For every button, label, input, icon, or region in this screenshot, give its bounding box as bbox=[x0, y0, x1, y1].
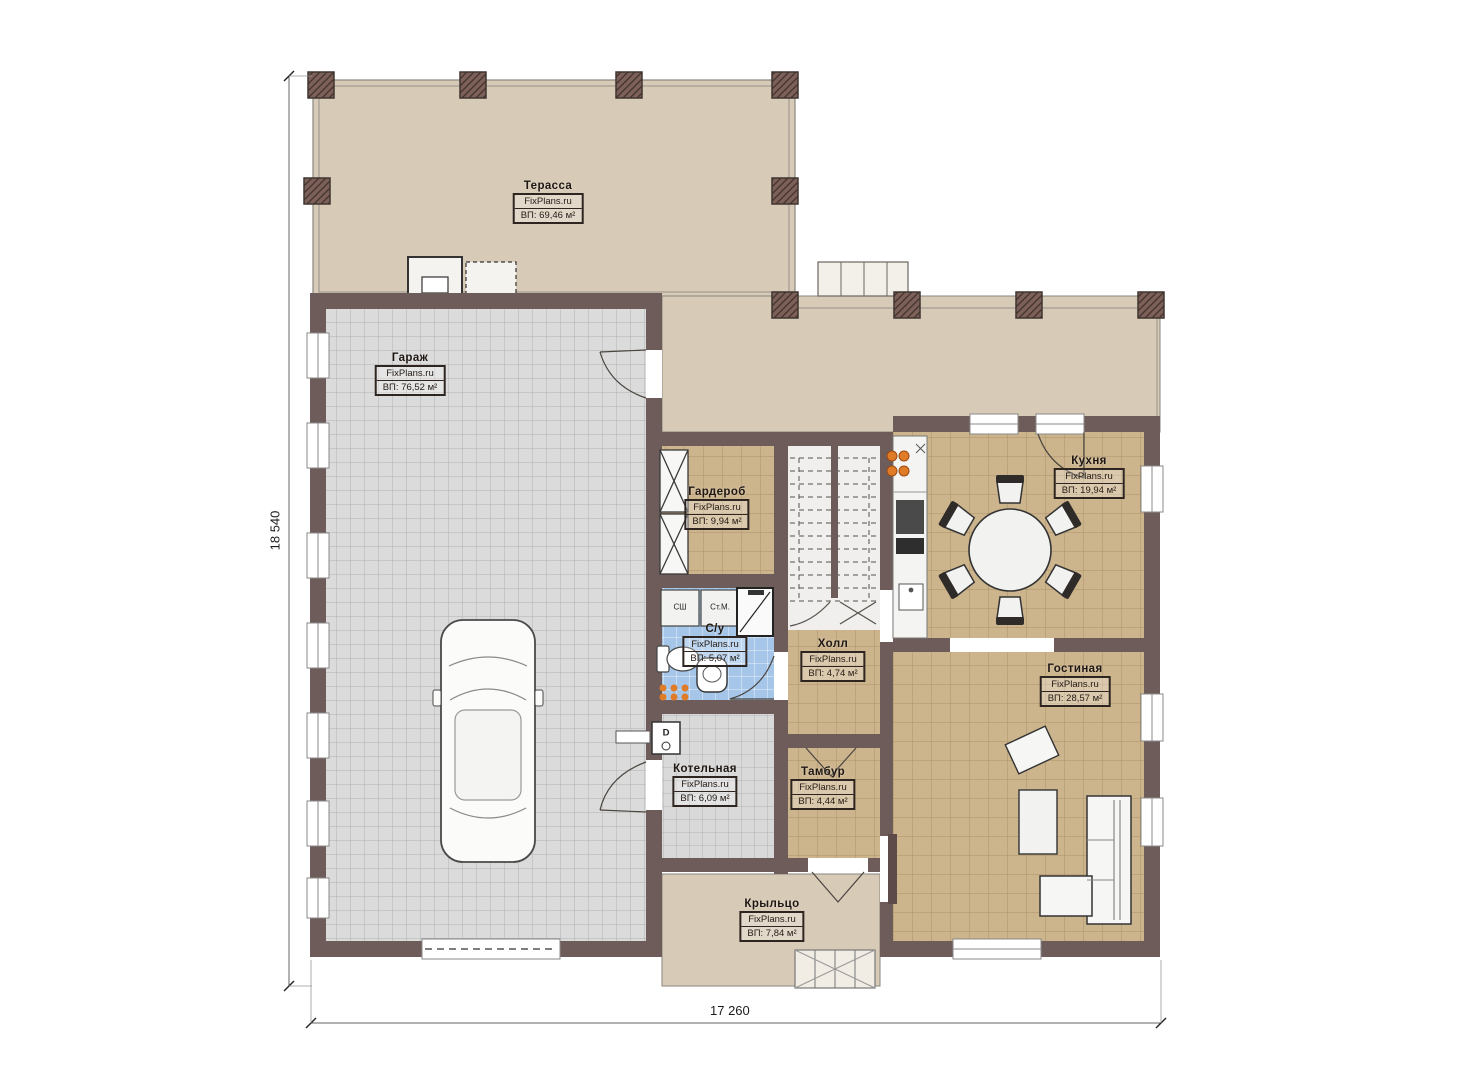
brand-text: FixPlans.ru bbox=[741, 913, 802, 927]
brand-text: FixPlans.ru bbox=[674, 778, 735, 792]
room-label-porch: Крыльцо FixPlans.ruВП: 7,84 м² bbox=[739, 898, 804, 942]
brand-text: FixPlans.ru bbox=[792, 781, 853, 795]
room-name: Гостиная bbox=[1040, 663, 1111, 675]
dryer-label: СШ bbox=[673, 603, 686, 612]
floor-plan-page: Терасса FixPlans.ruВП: 69,46 м² Гараж Fi… bbox=[0, 0, 1473, 1080]
room-area: ВП: 19,94 м² bbox=[1056, 484, 1123, 497]
room-name: Крыльцо bbox=[739, 898, 804, 910]
dimension-bottom: 17 260 bbox=[710, 1003, 750, 1018]
room-label-terrace: Терасса FixPlans.ruВП: 69,46 м² bbox=[513, 180, 584, 224]
room-name: Холл bbox=[800, 638, 865, 650]
room-name: Кухня bbox=[1054, 455, 1125, 467]
room-area: ВП: 6,09 м² bbox=[674, 792, 735, 805]
room-name: Гардероб bbox=[684, 486, 749, 498]
room-area: ВП: 76,52 м² bbox=[377, 381, 444, 394]
car bbox=[433, 620, 543, 862]
room-area: ВП: 9,94 м² bbox=[686, 515, 747, 528]
dimension-left: 18 540 bbox=[267, 511, 282, 551]
room-label-kitchen: Кухня FixPlans.ruВП: 19,94 м² bbox=[1054, 455, 1125, 499]
room-label-living: Гостиная FixPlans.ruВП: 28,57 м² bbox=[1040, 663, 1111, 707]
room-area: ВП: 69,46 м² bbox=[515, 209, 582, 222]
brand-text: FixPlans.ru bbox=[684, 638, 745, 652]
coffee-table bbox=[1019, 790, 1057, 854]
room-area: ВП: 4,74 м² bbox=[802, 667, 863, 680]
brand-text: FixPlans.ru bbox=[377, 367, 444, 381]
kitchen-counter bbox=[893, 436, 927, 638]
room-area: ВП: 4,44 м² bbox=[792, 795, 853, 808]
room-name: С/у bbox=[682, 623, 747, 635]
brand-text: FixPlans.ru bbox=[1042, 678, 1109, 692]
room-name: Котельная bbox=[672, 763, 737, 775]
boiler-unit-label: D bbox=[663, 728, 670, 739]
stair-stringer bbox=[831, 446, 838, 598]
porch-steps bbox=[795, 950, 875, 988]
terrace-steps bbox=[818, 262, 908, 296]
room-name: Терасса bbox=[513, 180, 584, 192]
room-label-bathroom: С/у FixPlans.ruВП: 5,07 м² bbox=[682, 623, 747, 667]
room-label-garage: Гараж FixPlans.ruВП: 76,52 м² bbox=[375, 352, 446, 396]
room-label-wardrobe: Гардероб FixPlans.ruВП: 9,94 м² bbox=[684, 486, 749, 530]
room-name: Гараж bbox=[375, 352, 446, 364]
floor-plan-drawing bbox=[0, 0, 1473, 1080]
room-area: ВП: 7,84 м² bbox=[741, 927, 802, 940]
room-area: ВП: 28,57 м² bbox=[1042, 692, 1109, 705]
room-label-hall: Холл FixPlans.ruВП: 4,74 м² bbox=[800, 638, 865, 682]
terrace-fireplace bbox=[408, 257, 516, 295]
room-label-vestibule: Тамбур FixPlans.ruВП: 4,44 м² bbox=[790, 766, 855, 810]
brand-text: FixPlans.ru bbox=[1056, 470, 1123, 484]
room-label-boiler: Котельная FixPlans.ruВП: 6,09 м² bbox=[672, 763, 737, 807]
room-area: ВП: 5,07 м² bbox=[684, 652, 745, 665]
room-name: Тамбур bbox=[790, 766, 855, 778]
brand-text: FixPlans.ru bbox=[686, 501, 747, 515]
pocket-door bbox=[888, 834, 897, 904]
washer-label: Ст.М. bbox=[710, 603, 730, 612]
brand-text: FixPlans.ru bbox=[515, 195, 582, 209]
brand-text: FixPlans.ru bbox=[802, 653, 863, 667]
